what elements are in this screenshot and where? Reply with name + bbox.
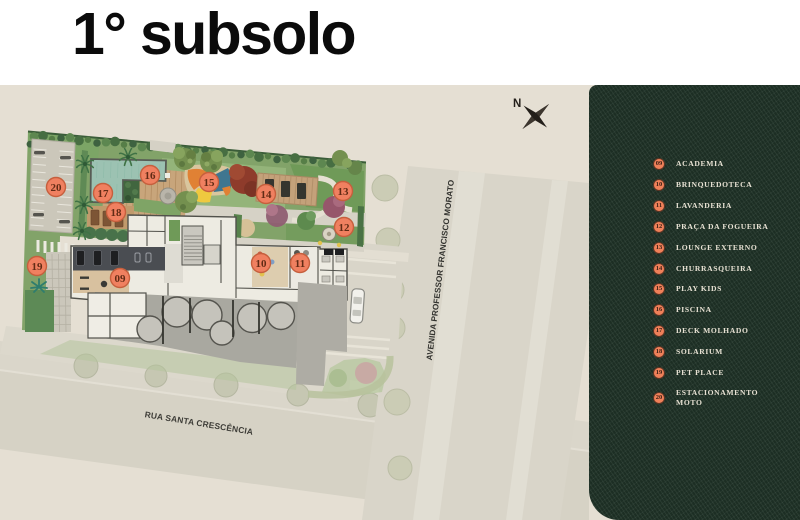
svg-text:16: 16 xyxy=(145,170,157,182)
svg-text:10: 10 xyxy=(256,258,268,270)
svg-text:12: 12 xyxy=(339,222,351,234)
svg-text:15: 15 xyxy=(204,177,216,189)
svg-text:14: 14 xyxy=(261,189,273,201)
svg-text:18: 18 xyxy=(111,207,123,219)
svg-text:13: 13 xyxy=(338,186,350,198)
svg-text:11: 11 xyxy=(295,258,305,270)
svg-text:09: 09 xyxy=(115,273,127,285)
svg-text:17: 17 xyxy=(98,188,110,200)
svg-text:20: 20 xyxy=(51,182,63,194)
svg-text:N: N xyxy=(513,98,521,110)
svg-text:19: 19 xyxy=(32,261,44,273)
